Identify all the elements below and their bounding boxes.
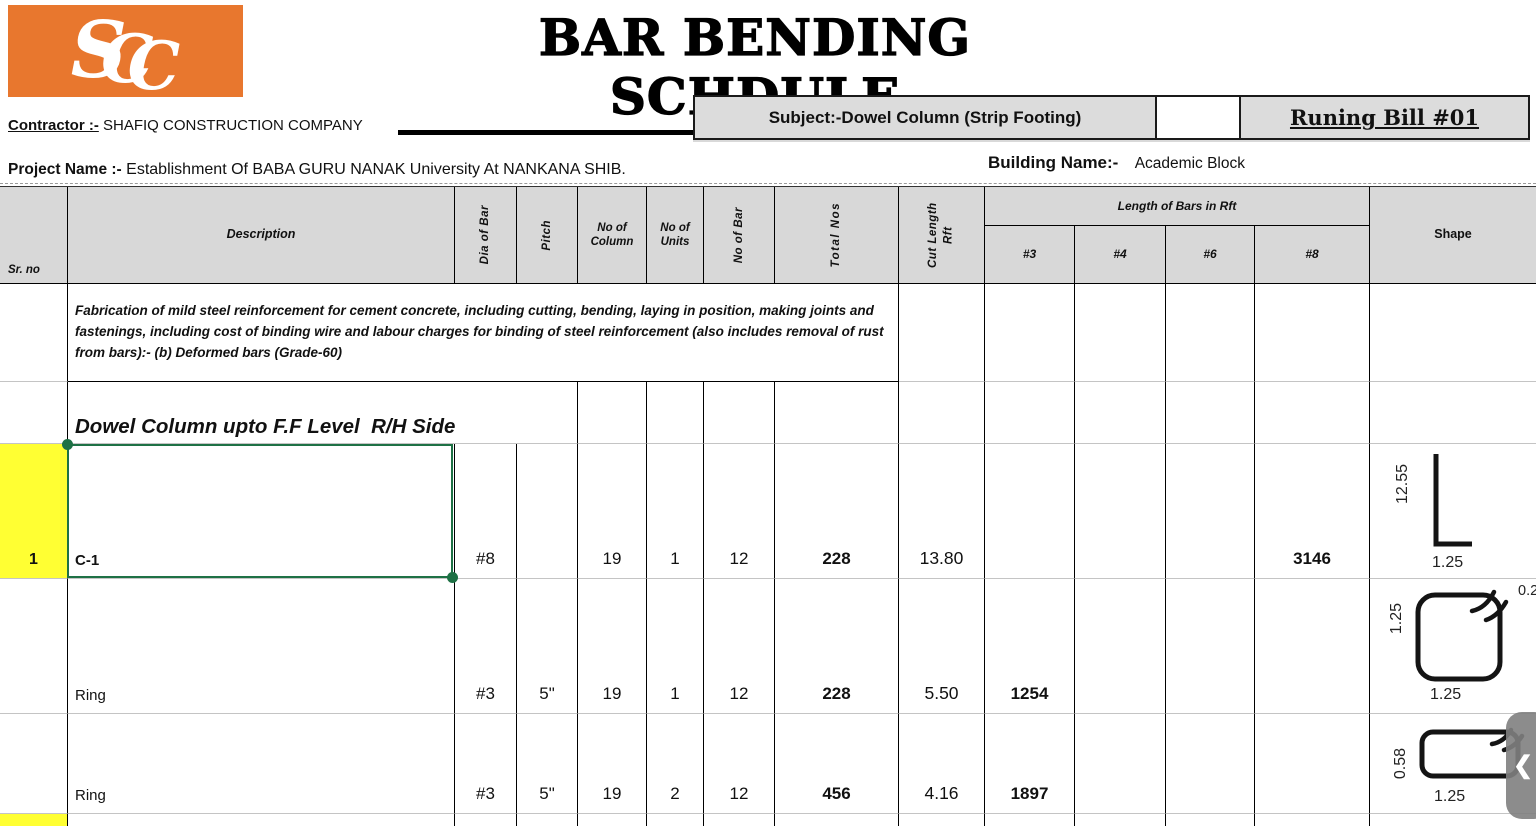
pitch-cell[interactable] [517, 444, 578, 579]
col-header-total-nos[interactable]: Total Nos [775, 187, 899, 284]
shape-horizontal-dim: 1.25 [1434, 788, 1465, 806]
shape-vertical-dim: 0.58 [1392, 748, 1410, 779]
sheet-cell[interactable] [1166, 814, 1255, 826]
sheet-cell[interactable] [985, 284, 1075, 382]
no-of-column-cell[interactable]: 19 [578, 714, 647, 814]
len3-cell[interactable]: 1897 [985, 714, 1075, 814]
contractor-value[interactable]: SHAFIQ CONSTRUCTION COMPANY [103, 117, 363, 134]
no-of-column-cell[interactable]: 19 [578, 579, 647, 714]
len3-cell[interactable] [985, 444, 1075, 579]
sheet-cell[interactable] [1255, 284, 1370, 382]
sheet-cell[interactable] [1075, 382, 1166, 444]
no-of-units-cell[interactable]: 1 [647, 579, 704, 714]
sheet-cell[interactable] [578, 814, 647, 826]
col-header-cut-length[interactable]: Cut Length Rft [899, 187, 985, 284]
project-name-label[interactable]: Project Name :- [8, 161, 122, 178]
col-header-bar6[interactable]: #6 [1166, 226, 1255, 284]
len4-cell[interactable] [1075, 714, 1166, 814]
subject-strip: Subject:-Dowel Column (Strip Footing) Ru… [693, 95, 1530, 140]
len4-cell[interactable] [1075, 579, 1166, 714]
sheet-cell[interactable] [1370, 382, 1536, 444]
dia-cell[interactable]: #3 [455, 714, 517, 814]
logo-letter: C [128, 33, 181, 97]
col-header-sr[interactable]: Sr. no [0, 187, 68, 284]
sr-cell[interactable] [0, 714, 68, 814]
shape-horizontal-dim: 1.25 [1432, 554, 1463, 572]
col-header-length-group[interactable]: Length of Bars in Rft [985, 187, 1370, 226]
len4-cell[interactable] [1075, 444, 1166, 579]
no-of-column-cell[interactable]: 19 [578, 444, 647, 579]
project-name-value[interactable]: Establishment Of BABA GURU NANAK Univers… [126, 161, 626, 178]
no-of-bar-cell[interactable]: 12 [704, 579, 775, 714]
sheet-cell[interactable] [68, 814, 455, 826]
fabrication-note-cell[interactable]: Fabrication of mild steel reinforcement … [68, 284, 899, 382]
collapse-panel-tab[interactable]: ❮ [1506, 712, 1536, 819]
shape-hook-dim: 0.25 [1518, 583, 1536, 599]
col-header-bar3[interactable]: #3 [985, 226, 1075, 284]
section-heading-cell[interactable]: Dowel Column upto F.F Level R/H Side [68, 382, 578, 444]
sheet-cell[interactable] [647, 814, 704, 826]
col-header-shape[interactable]: Shape [1370, 187, 1536, 284]
sheet-cell[interactable] [704, 814, 775, 826]
description-cell[interactable]: Ring [68, 714, 455, 814]
col-header-no-of-bar[interactable]: No of Bar [704, 187, 775, 284]
len6-cell[interactable] [1166, 714, 1255, 814]
sheet-cell[interactable] [455, 814, 517, 826]
total-nos-cell[interactable]: 228 [775, 444, 899, 579]
sheet-cell[interactable] [578, 382, 647, 444]
sheet-cell[interactable] [0, 284, 68, 382]
pitch-cell[interactable]: 5" [517, 579, 578, 714]
len8-cell[interactable]: 3146 [1255, 444, 1370, 579]
project-line: Project Name :- Establishment Of BABA GU… [8, 161, 626, 179]
description-cell[interactable]: Ring [68, 579, 455, 714]
shape-horizontal-dim: 1.25 [1430, 686, 1461, 704]
sheet-cell[interactable] [704, 382, 775, 444]
chevron-left-icon: ❮ [1513, 751, 1533, 780]
sheet-cell[interactable] [1370, 814, 1536, 826]
col-header-bar4[interactable]: #4 [1075, 226, 1166, 284]
sheet-cell[interactable] [775, 814, 899, 826]
len6-cell[interactable] [1166, 444, 1255, 579]
len6-cell[interactable] [1166, 579, 1255, 714]
shape-vertical-dim: 1.25 [1388, 603, 1406, 634]
sheet-cell[interactable] [1255, 382, 1370, 444]
running-bill-cell[interactable]: Runing Bill #01 [1241, 97, 1528, 138]
sheet-cell[interactable] [899, 284, 985, 382]
company-logo: SCC [8, 5, 243, 97]
building-name-label[interactable]: Building Name:- [988, 153, 1118, 172]
sheet-cell[interactable] [899, 814, 985, 826]
col-header-no-of-units[interactable]: No of Units [647, 187, 704, 284]
cut-length-cell[interactable]: 4.16 [899, 714, 985, 814]
col-header-pitch-label: Pitch [540, 220, 554, 251]
total-nos-cell[interactable]: 228 [775, 579, 899, 714]
col-header-total-nos-label: Total Nos [829, 202, 843, 267]
sr-cell[interactable]: 1 [0, 444, 68, 579]
description-cell[interactable]: C-1 [68, 444, 455, 579]
contractor-line: Contractor :- SHAFIQ CONSTRUCTION COMPAN… [8, 117, 363, 134]
col-header-no-of-bar-label: No of Bar [732, 207, 746, 263]
col-header-dia[interactable]: Dia of Bar [455, 187, 517, 284]
bar-bending-schedule-table: Sr. no Description Dia of Bar Pitch No o… [0, 186, 1536, 825]
building-name-value[interactable]: Academic Block [1135, 155, 1245, 172]
contractor-label[interactable]: Contractor :- [8, 117, 99, 134]
col-header-bar8[interactable]: #8 [1255, 226, 1370, 284]
len3-cell[interactable]: 1254 [985, 579, 1075, 714]
sheet-cell[interactable] [1075, 284, 1166, 382]
pitch-cell[interactable]: 5" [517, 714, 578, 814]
sheet-cell[interactable] [985, 814, 1075, 826]
sheet-cell[interactable] [1166, 382, 1255, 444]
cut-length-cell[interactable]: 13.80 [899, 444, 985, 579]
subject-cell[interactable]: Subject:-Dowel Column (Strip Footing) [695, 97, 1157, 138]
col-header-no-of-column[interactable]: No of Column [578, 187, 647, 284]
no-of-bar-cell[interactable]: 12 [704, 714, 775, 814]
col-header-cut-length-label: Cut Length Rft [926, 196, 957, 274]
len8-cell[interactable] [1255, 579, 1370, 714]
sheet-cell[interactable] [1075, 814, 1166, 826]
no-of-bar-cell[interactable]: 12 [704, 444, 775, 579]
col-header-dia-label: Dia of Bar [478, 205, 492, 264]
subject-blank-cell[interactable] [1157, 97, 1241, 138]
shape-vertical-dim: 12.55 [1394, 464, 1412, 504]
l-bar-shape-icon [1428, 452, 1476, 554]
sheet-cell[interactable] [1255, 814, 1370, 826]
sheet-cell[interactable] [0, 382, 68, 444]
sr-cell[interactable] [0, 579, 68, 714]
sheet-cell[interactable] [1166, 284, 1255, 382]
building-line: Building Name:- Academic Block [988, 153, 1245, 173]
sheet-cell[interactable] [775, 382, 899, 444]
len8-cell[interactable] [1255, 714, 1370, 814]
col-header-pitch[interactable]: Pitch [517, 187, 578, 284]
total-nos-cell[interactable]: 456 [775, 714, 899, 814]
shape-cell[interactable]: 12.55 1.25 [1370, 444, 1536, 579]
dia-cell[interactable]: #8 [455, 444, 517, 579]
no-of-units-cell[interactable]: 2 [647, 714, 704, 814]
sheet-cell[interactable] [647, 382, 704, 444]
stirrup-ring-shape-icon [1414, 585, 1514, 683]
sheet-cell[interactable] [899, 382, 985, 444]
sheet-cell[interactable] [985, 382, 1075, 444]
sheet-cell[interactable] [517, 814, 578, 826]
sr-cell[interactable] [0, 814, 68, 826]
shape-cell[interactable]: 1.25 0.25 1.25 [1370, 579, 1536, 714]
no-of-units-cell[interactable]: 1 [647, 444, 704, 579]
sheet-cell[interactable] [1370, 284, 1536, 382]
cut-length-cell[interactable]: 5.50 [899, 579, 985, 714]
dia-cell[interactable]: #3 [455, 579, 517, 714]
page-break-line [0, 183, 1536, 184]
col-header-description[interactable]: Description [68, 187, 455, 284]
